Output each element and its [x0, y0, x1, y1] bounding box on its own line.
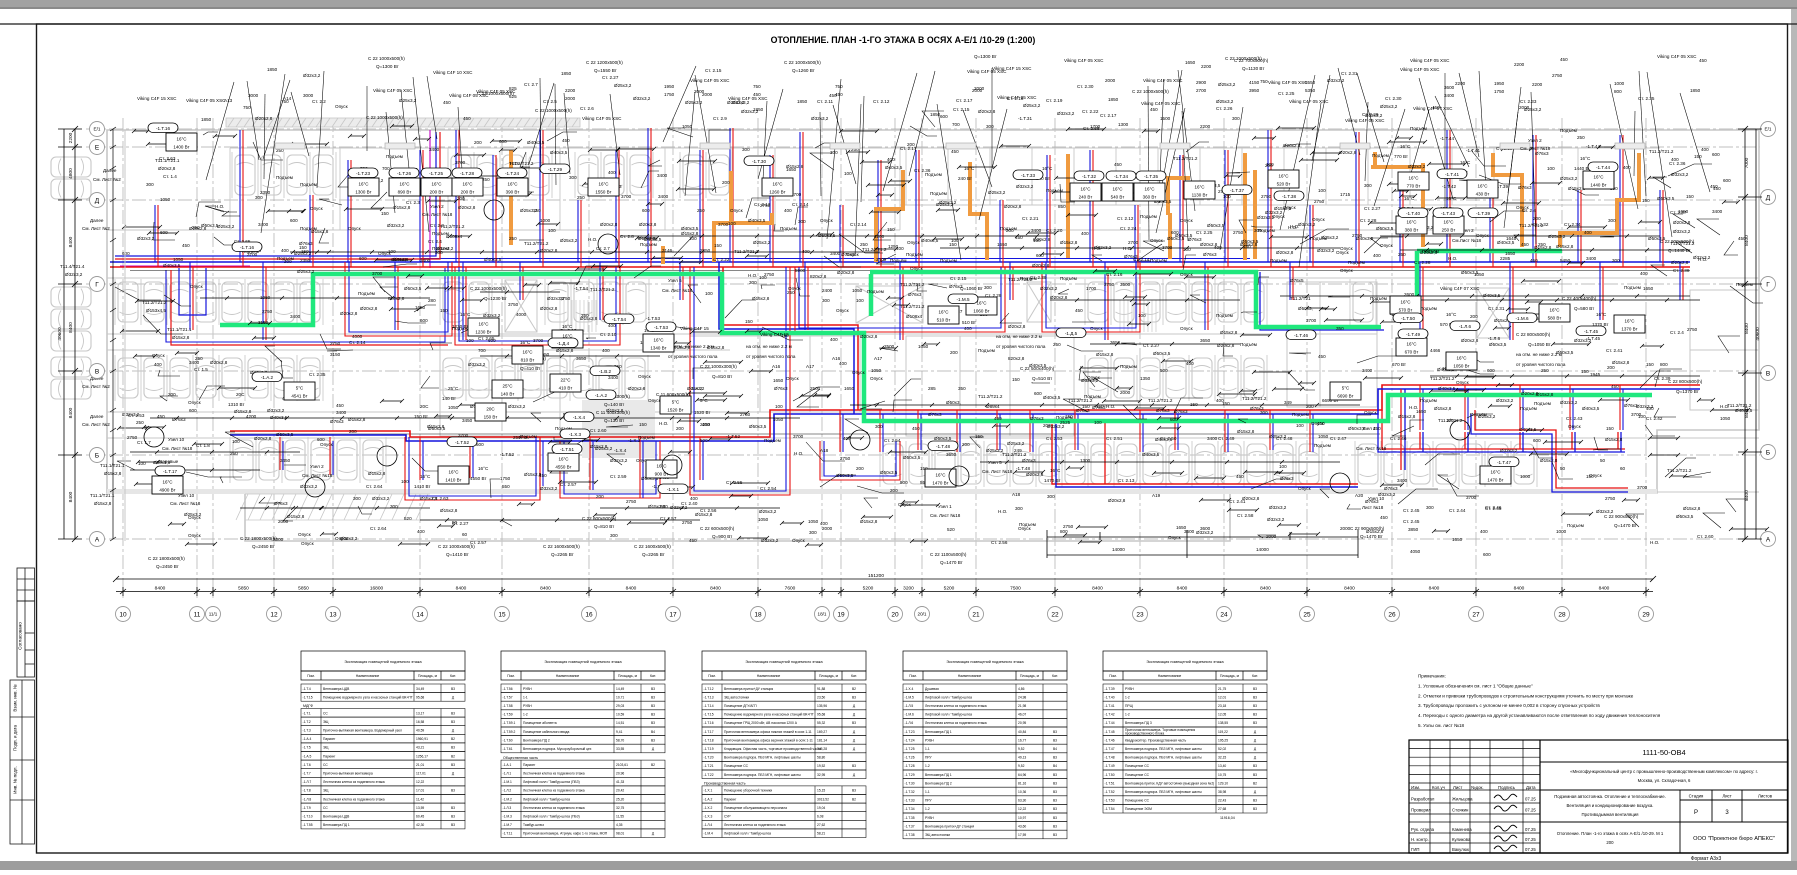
- svg-text:150: 150: [1190, 402, 1198, 407]
- svg-text:138,55: 138,55: [1218, 721, 1228, 725]
- svg-text:Т11.2/Т21.2: Т11.2/Т21.2: [978, 394, 1003, 399]
- svg-text:2750: 2750: [1104, 282, 1115, 287]
- svg-text:200: 200: [168, 392, 176, 397]
- svg-text:Ø20х2,8: Ø20х2,8: [1420, 250, 1438, 255]
- svg-text:Опуск: Опуск: [820, 218, 834, 223]
- svg-text:Ø20х2,8: Ø20х2,8: [1217, 343, 1235, 348]
- svg-text:-1.Л.5: -1.Л.5: [905, 704, 914, 708]
- svg-text:24,98: 24,98: [1018, 695, 1026, 699]
- svg-text:-1.Т.12: -1.Т.12: [704, 687, 714, 691]
- svg-text:-1.Т.50: -1.Т.50: [1105, 773, 1115, 777]
- svg-text:400: 400: [1584, 230, 1592, 235]
- svg-text:450: 450: [1380, 515, 1388, 520]
- svg-text:24: 24: [1220, 611, 1228, 618]
- svg-text:3400: 3400: [1712, 209, 1723, 214]
- svg-text:Ø15х2,8: Ø15х2,8: [1536, 392, 1554, 397]
- svg-text:Паркинг: Паркинг: [323, 737, 336, 741]
- svg-text:-1.Т.59: -1.Т.59: [503, 713, 513, 717]
- svg-text:100: 100: [1183, 247, 1191, 252]
- svg-text:40600: 40600: [57, 327, 63, 341]
- svg-text:1850: 1850: [267, 67, 278, 72]
- svg-text:2750: 2750: [626, 499, 637, 504]
- svg-text:Опуск: Опуск: [1180, 326, 1194, 331]
- svg-text:Подъем: Подъем: [1046, 188, 1063, 193]
- svg-text:450: 450: [1236, 474, 1244, 479]
- svg-text:Ø20х2,8: Ø20х2,8: [254, 436, 272, 441]
- svg-text:12,22: 12,22: [1018, 807, 1026, 811]
- svg-text:-1.Т.16: -1.Т.16: [240, 245, 254, 250]
- svg-text:100: 100: [232, 439, 240, 444]
- svg-text:-1.Т.61: -1.Т.61: [503, 747, 513, 751]
- svg-text:600: 600: [1487, 368, 1495, 373]
- svg-text:7500: 7500: [1010, 586, 1021, 592]
- svg-text:1300 Вт: 1300 Вт: [355, 190, 371, 195]
- svg-text:8400: 8400: [1177, 586, 1188, 592]
- svg-text:Венткамера ЦДВ: Венткамера ЦДВ: [323, 815, 350, 819]
- svg-text:-1.Т.15: -1.Т.15: [303, 695, 313, 699]
- svg-text:Ø25х3,2: Ø25х3,2: [988, 190, 1006, 195]
- svg-text:Н. контр.: Н. контр.: [1411, 837, 1429, 842]
- svg-text:Ст. 1.8: Ст. 1.8: [196, 443, 210, 448]
- svg-text:181,14: 181,14: [817, 738, 827, 742]
- svg-text:Ø15х2,8: Ø15х2,8: [524, 472, 542, 477]
- svg-text:11,55: 11,55: [616, 815, 624, 819]
- svg-text:1470 Вт: 1470 Вт: [932, 481, 948, 486]
- svg-text:1470 Вт: 1470 Вт: [1487, 478, 1503, 483]
- svg-text:Ø76х3: Ø76х3: [1203, 252, 1217, 257]
- svg-text:В2: В2: [651, 763, 655, 767]
- svg-text:Ø32х3,2: Ø32х3,2: [761, 538, 779, 543]
- svg-text:150: 150: [639, 422, 647, 427]
- svg-text:А20: А20: [1355, 493, 1364, 498]
- svg-text:Опуск: Опуск: [870, 376, 884, 381]
- svg-text:-1.Л.4: -1.Л.4: [704, 823, 713, 827]
- svg-text:Опуск: Опуск: [846, 252, 860, 257]
- svg-text:ЭЩ: ЭЩ: [323, 789, 328, 793]
- svg-text:Ø15х2,8: Ø15х2,8: [94, 501, 112, 506]
- svg-text:Приточно-вытяжная венткамера: Приточно-вытяжная венткамера: [323, 772, 373, 776]
- svg-text:-1.А.2: -1.А.2: [704, 797, 713, 801]
- svg-text:В3: В3: [651, 713, 655, 717]
- svg-text:1050: 1050: [173, 257, 184, 262]
- svg-text:300: 300: [822, 298, 830, 303]
- svg-text:2750: 2750: [262, 309, 273, 314]
- svg-text:800: 800: [1614, 89, 1622, 94]
- svg-text:400: 400: [602, 348, 610, 353]
- svg-text:Viking C4F 05 XSC: Viking C4F 05 XSC: [373, 88, 413, 93]
- svg-text:Ст. 2.27: Ст. 2.27: [602, 75, 619, 80]
- svg-text:349: 349: [1284, 400, 1292, 405]
- svg-text:РУВН: РУВН: [925, 816, 934, 820]
- svg-text:Ст. 2.2: Ст. 2.2: [312, 99, 326, 104]
- svg-text:250: 250: [230, 451, 238, 456]
- svg-text:-1.Т.45: -1.Т.45: [1584, 329, 1598, 334]
- svg-text:-1.Т.32: -1.Т.32: [905, 790, 915, 794]
- svg-text:А: А: [95, 536, 100, 543]
- svg-text:Ст. 2.55: Ст. 2.55: [726, 480, 743, 485]
- svg-text:С 22 900х500(h): С 22 900х500(h): [1350, 526, 1385, 531]
- svg-text:200: 200: [474, 140, 482, 145]
- svg-text:1250: 1250: [888, 244, 899, 249]
- svg-text:07.25: 07.25: [1525, 808, 1536, 813]
- svg-text:300: 300: [255, 195, 263, 200]
- svg-text:Ст. 2.4: Ст. 2.4: [1670, 330, 1684, 335]
- svg-text:-1.Т.58: -1.Т.58: [503, 704, 513, 708]
- svg-text:16°C: 16°C: [162, 480, 173, 485]
- svg-text:Приточная венткамера офиса ниж: Приточная венткамера офиса нижних этажей…: [724, 730, 812, 734]
- svg-text:В3: В3: [651, 738, 655, 742]
- svg-text:95,68: 95,68: [817, 713, 825, 717]
- svg-text:Помещение ГРЩ 2000 кВт, АВ нас: Помещение ГРЩ 2000 кВт, АВ насосная 1200…: [724, 721, 798, 725]
- svg-text:200: 200: [1470, 314, 1478, 319]
- svg-text:Ст. 2.47: Ст. 2.47: [1330, 436, 1347, 441]
- svg-text:Лестничная клетка из подземног: Лестничная клетка из подземного этажа: [724, 823, 786, 827]
- svg-text:-1.Т.56: -1.Т.56: [503, 687, 513, 691]
- svg-text:-1.Л.3: -1.Л.3: [503, 806, 512, 810]
- svg-text:8400: 8400: [1344, 586, 1355, 592]
- svg-text:2200: 2200: [1200, 124, 1211, 129]
- svg-text:производственного блока: производственного блока: [1125, 731, 1164, 735]
- svg-text:Ø32х3,2: Ø32х3,2: [1496, 398, 1514, 403]
- svg-text:Н.О.: Н.О.: [1448, 256, 1457, 261]
- svg-text:Опуск: Опуск: [1456, 380, 1470, 385]
- svg-text:Паркинг: Паркинг: [523, 763, 536, 767]
- svg-text:300: 300: [809, 530, 817, 535]
- svg-text:-1.А.5: -1.А.5: [303, 754, 312, 758]
- svg-text:Е/1: Е/1: [1765, 127, 1772, 132]
- svg-text:150: 150: [1586, 474, 1594, 479]
- svg-text:2350: 2350: [300, 258, 311, 263]
- svg-text:2. Отметки и привязки трубопро: 2. Отметки и привязки трубопроводов к ст…: [1418, 693, 1634, 698]
- svg-text:2700: 2700: [1196, 88, 1207, 93]
- svg-text:200: 200: [950, 350, 958, 355]
- svg-text:Ø76х3: Ø76х3: [1030, 416, 1044, 421]
- svg-text:3400: 3400: [1207, 436, 1218, 441]
- svg-text:Ст. 2.17: Ст. 2.17: [1100, 113, 1117, 118]
- svg-text:Подъем: Подъем: [300, 226, 317, 231]
- svg-text:17,01: 17,01: [416, 789, 424, 793]
- svg-text:Подьём: Подьём: [890, 258, 907, 263]
- svg-text:16,58: 16,58: [416, 720, 424, 724]
- svg-text:Ø50х3,5: Ø50х3,5: [1167, 236, 1185, 241]
- svg-text:Подъем: Подъем: [978, 348, 995, 353]
- svg-text:Ø20х2,8: Ø20х2,8: [1283, 143, 1301, 148]
- svg-text:19,52: 19,52: [817, 764, 825, 768]
- svg-text:Ст. 2.35: Ст. 2.35: [1638, 96, 1655, 101]
- svg-text:-1.М.6: -1.М.6: [905, 713, 915, 717]
- svg-text:-1.Т.35: -1.Т.35: [905, 816, 915, 820]
- svg-text:98,01: 98,01: [616, 832, 624, 836]
- svg-text:16°C: 16°C: [358, 182, 369, 187]
- svg-text:Наименование: Наименование: [556, 674, 580, 678]
- svg-text:Лестничная клетка из подземног: Лестничная клетка из подземного этажа: [925, 721, 987, 725]
- svg-text:1850: 1850: [797, 99, 808, 104]
- svg-text:169,27: 169,27: [817, 730, 827, 734]
- svg-text:16°C: 16°C: [653, 338, 664, 343]
- svg-text:-1.Т.53: -1.Т.53: [654, 325, 668, 330]
- svg-text:Viking C4F 05 XSC: Viking C4F 05 XSC: [582, 116, 622, 121]
- svg-text:Экспликация помещений подземно: Экспликация помещений подземного этажа: [544, 660, 622, 664]
- svg-text:-1.Т.33: -1.Т.33: [1021, 173, 1035, 178]
- svg-text:2000: 2000: [278, 519, 289, 524]
- svg-text:Q=1300 Вт: Q=1300 Вт: [376, 64, 400, 69]
- svg-text:3400: 3400: [658, 194, 669, 199]
- svg-text:29: 29: [1642, 611, 1650, 618]
- svg-text:600: 600: [420, 318, 428, 323]
- svg-text:9,52: 9,52: [1018, 764, 1025, 768]
- svg-text:500: 500: [900, 480, 908, 485]
- svg-text:60: 60: [462, 532, 468, 537]
- svg-text:-1.Т.13: -1.Т.13: [704, 695, 714, 699]
- svg-text:Ø25х3,2: Ø25х3,2: [399, 98, 417, 103]
- svg-text:12,01: 12,01: [1218, 695, 1226, 699]
- svg-text:600: 600: [1712, 152, 1720, 157]
- svg-text:16°C: 16°C: [772, 182, 783, 187]
- svg-text:1470 Вт: 1470 Вт: [1044, 478, 1061, 483]
- svg-text:7000: 7000: [1744, 157, 1750, 168]
- svg-text:Ø32х3,2: Ø32х3,2: [1327, 78, 1345, 83]
- svg-text:Ø25х3,2: Ø25х3,2: [614, 83, 632, 88]
- svg-text:Узел 10: Узел 10: [1368, 496, 1385, 501]
- svg-text:Подъем: Подъем: [1020, 276, 1037, 281]
- svg-text:В4: В4: [1053, 764, 1057, 768]
- svg-text:3750: 3750: [508, 302, 519, 307]
- svg-text:Ст. 2.56: Ст. 2.56: [991, 540, 1008, 545]
- svg-text:Ø25х3,2: Ø25х3,2: [560, 238, 578, 243]
- svg-text:1-2: 1-2: [925, 807, 930, 811]
- svg-text:Ст. 2.8: Ст. 2.8: [620, 234, 634, 239]
- svg-text:100: 100: [548, 228, 556, 233]
- svg-text:Viking C4F 07 XSC: Viking C4F 07 XSC: [1440, 286, 1480, 291]
- svg-text:520: 520: [404, 516, 412, 521]
- svg-text:16°C: 16°C: [460, 312, 471, 317]
- svg-text:-1.Т.45: -1.Т.45: [1586, 336, 1600, 341]
- svg-text:-1.Т.55: -1.Т.55: [303, 823, 313, 827]
- svg-text:Подпись: Подпись: [1498, 785, 1516, 790]
- svg-text:Помещение СС: Помещение СС: [1125, 764, 1150, 768]
- svg-text:Подъем: Подъем: [780, 226, 797, 231]
- svg-text:58,70: 58,70: [616, 738, 624, 742]
- svg-text:В3: В3: [1053, 816, 1057, 820]
- svg-text:Венткамера ПД 1: Венткамера ПД 1: [925, 773, 952, 777]
- svg-text:129,10: 129,10: [1218, 781, 1228, 785]
- svg-text:16,77: 16,77: [1018, 738, 1026, 742]
- svg-text:-1.Х.4: -1.Х.4: [573, 415, 586, 420]
- svg-text:-1.Т.54: -1.Т.54: [574, 286, 588, 291]
- svg-text:-1.Т.30: -1.Т.30: [752, 159, 766, 164]
- svg-text:20,42: 20,42: [616, 789, 624, 793]
- svg-text:Viking C4F 05 XSC: Viking C4F 05 XSC: [449, 93, 489, 98]
- svg-text:Ø15х2,8: Ø15х2,8: [393, 205, 411, 210]
- svg-text:Ø20х2,8: Ø20х2,8: [1276, 250, 1294, 255]
- svg-text:Ø40х3,5: Ø40х3,5: [1582, 406, 1600, 411]
- svg-text:-1.Х.2: -1.Х.2: [704, 806, 713, 810]
- svg-text:Q=2450 Вт: Q=2450 Вт: [252, 544, 276, 549]
- svg-text:4200: 4200: [874, 234, 885, 239]
- svg-text:3400: 3400: [258, 222, 269, 227]
- svg-text:С 22 600х500(h): С 22 600х500(h): [700, 526, 735, 531]
- svg-text:Ø76х5: Ø76х5: [1290, 278, 1304, 283]
- svg-text:Ст. 2.60: Ст. 2.60: [1697, 534, 1714, 539]
- svg-text:Помещение ДГУ/АГП: Помещение ДГУ/АГП: [724, 704, 757, 708]
- svg-text:Опуск: Опуск: [852, 370, 866, 375]
- svg-text:-1.Т.39: -1.Т.39: [1105, 687, 1115, 691]
- svg-text:4900 Вт: 4900 Вт: [159, 488, 175, 493]
- svg-text:21,98: 21,98: [1018, 704, 1026, 708]
- svg-text:Т11.2/Т21.2: Т11.2/Т21.2: [590, 287, 615, 292]
- svg-text:Помещение кабельного ввода: Помещение кабельного ввода: [523, 730, 569, 734]
- svg-text:Ø15х2,8: Ø15х2,8: [1556, 244, 1574, 249]
- svg-text:Н.О.: Н.О.: [1123, 246, 1132, 251]
- svg-text:Изм.: Изм.: [1411, 785, 1420, 790]
- svg-text:250: 250: [509, 236, 517, 241]
- svg-text:-1.Т.24: -1.Т.24: [505, 171, 519, 176]
- svg-text:Опуск: Опуск: [1272, 214, 1286, 219]
- svg-text:3400: 3400: [1397, 478, 1408, 483]
- svg-text:16°C: 16°C: [520, 340, 531, 345]
- svg-text:Ст. 1.4: Ст. 1.4: [163, 174, 177, 179]
- svg-text:12,05: 12,05: [1218, 713, 1226, 717]
- svg-text:Ст. 2.36: Ст. 2.36: [1669, 161, 1686, 166]
- svg-text:38,98: 38,98: [1218, 790, 1226, 794]
- svg-text:119,22: 119,22: [1218, 730, 1228, 734]
- svg-text:600: 600: [1036, 253, 1044, 258]
- svg-text:Ø15х2,8: Ø15х2,8: [590, 444, 608, 449]
- svg-text:Ст. 2.27: Ст. 2.27: [1143, 343, 1160, 348]
- svg-text:400: 400: [417, 529, 425, 534]
- svg-text:от уровня чистого пола: от уровня чистого пола: [746, 354, 796, 359]
- svg-text:Ø50х3,5: Ø50х3,5: [903, 455, 921, 460]
- svg-text:Ø20х2,8: Ø20х2,8: [255, 116, 273, 121]
- svg-text:Шаровые: Шаровые: [158, 459, 179, 464]
- svg-text:Экспликация помещений подземно: Экспликация помещений подземного этажа: [344, 660, 422, 664]
- svg-text:-1.Т.25: -1.Т.25: [429, 171, 443, 176]
- svg-text:1260 Вт: 1260 Вт: [769, 190, 785, 195]
- svg-text:Ø76х3: Ø76х3: [928, 412, 942, 417]
- svg-text:2000: 2000: [565, 96, 576, 101]
- svg-text:Ø20х2,8: Ø20х2,8: [600, 222, 618, 227]
- svg-text:Q=140 Вт: Q=140 Вт: [604, 402, 625, 407]
- svg-text:Помещение СС: Помещение СС: [724, 764, 749, 768]
- svg-text:1520 Вт: 1520 Вт: [667, 408, 683, 413]
- svg-text:1650: 1650: [773, 378, 784, 383]
- svg-text:Ст. 2.59: Ст. 2.59: [610, 474, 627, 479]
- svg-text:Ø20х2,8: Ø20х2,8: [540, 306, 558, 311]
- svg-text:Далее: Далее: [103, 168, 117, 173]
- svg-text:300: 300: [146, 182, 154, 187]
- svg-text:200: 200: [856, 466, 864, 471]
- svg-text:100: 100: [728, 221, 736, 226]
- svg-text:В3: В3: [451, 823, 455, 827]
- svg-text:Q=810 Вт: Q=810 Вт: [712, 374, 733, 379]
- svg-text:Стоякин: Стоякин: [1452, 808, 1469, 813]
- svg-text:А18: А18: [1012, 492, 1021, 497]
- svg-text:Подъем: Подъем: [276, 175, 293, 180]
- svg-text:Ø20х2,8: Ø20х2,8: [978, 109, 996, 114]
- svg-text:Подъем: Подъем: [764, 438, 781, 443]
- svg-text:Ø40х3,5: Ø40х3,5: [1519, 427, 1537, 432]
- svg-text:Ст. 2.25: Ст. 2.25: [1278, 91, 1295, 96]
- svg-text:А14: А14: [283, 96, 292, 101]
- svg-text:С 11 400х300(h): С 11 400х300(h): [596, 410, 630, 415]
- svg-text:16°C: 16°C: [1194, 185, 1205, 190]
- svg-text:-1.Т.54: -1.Т.54: [612, 317, 626, 322]
- svg-text:Ø108х4: Ø108х4: [906, 314, 923, 319]
- svg-text:28: 28: [1558, 611, 1566, 618]
- svg-text:Тамбур-шлюз: Тамбур-шлюз: [523, 823, 544, 827]
- svg-text:16°C: 16°C: [1400, 300, 1411, 305]
- svg-text:Н.О.: Н.О.: [588, 237, 597, 242]
- svg-text:100: 100: [844, 171, 852, 176]
- svg-text:3700: 3700: [1637, 485, 1648, 490]
- svg-text:-1.Т.29: -1.Т.29: [548, 167, 562, 172]
- svg-text:Ø32х3,2: Ø32х3,2: [303, 73, 321, 78]
- svg-text:В4: В4: [651, 730, 655, 734]
- svg-text:Опуск: Опуск: [898, 502, 912, 507]
- svg-text:Ø50х3,5: Ø50х3,5: [1657, 196, 1675, 201]
- svg-text:46,07: 46,07: [1018, 713, 1026, 717]
- svg-text:Т11.2/Т21.2: Т11.2/Т21.2: [900, 304, 925, 309]
- svg-text:-1.Т.2: -1.Т.2: [303, 720, 311, 724]
- svg-text:2900: 2900: [1196, 80, 1207, 85]
- svg-text:Т11.1/Т21.1: Т11.1/Т21.1: [90, 493, 115, 498]
- svg-text:Г: Г: [95, 281, 99, 288]
- svg-text:1050: 1050: [808, 519, 819, 524]
- svg-text:1715: 1715: [1340, 192, 1351, 197]
- svg-text:Ø32х3,2: Ø32х3,2: [137, 236, 155, 241]
- svg-text:Ст. 2.6: Ст. 2.6: [580, 106, 594, 111]
- svg-text:Лифтовой холл / Тамбур-шлюз (П: Лифтовой холл / Тамбур-шлюз (ПБЗ): [523, 815, 580, 819]
- svg-text:Т11.2/Т21.2: Т11.2/Т21.2: [142, 300, 167, 305]
- svg-text:ПРЩ: ПРЩ: [1125, 704, 1133, 708]
- svg-text:3850: 3850: [1408, 527, 1419, 532]
- svg-text:Опуск: Опуск: [788, 286, 802, 291]
- svg-text:Ø20х2,8: Ø20х2,8: [540, 248, 558, 253]
- svg-text:Ст. 2.13: Ст. 2.13: [754, 202, 771, 207]
- svg-text:Венткамера приток+ДУ станция: Венткамера приток+ДУ станция: [724, 687, 773, 691]
- svg-text:В3: В3: [852, 789, 856, 793]
- svg-text:Ø40х3,5: Ø40х3,5: [1043, 395, 1061, 400]
- svg-text:С 22 1800х500(h): С 22 1800х500(h): [240, 536, 277, 541]
- svg-text:1850: 1850: [201, 117, 212, 122]
- svg-text:Стадия: Стадия: [1689, 794, 1704, 799]
- svg-text:5350: 5350: [1305, 88, 1316, 93]
- svg-text:Т11.2/Т21.2: Т11.2/Т21.2: [524, 241, 549, 246]
- svg-text:3700: 3700: [1162, 245, 1173, 250]
- svg-text:на отм. не ниже 2.2 м: на отм. не ниже 2.2 м: [1516, 352, 1562, 357]
- svg-text:Q=1050 Вт: Q=1050 Вт: [1528, 342, 1552, 347]
- svg-text:на отм. не ниже 2.2 м: на отм. не ниже 2.2 м: [746, 344, 792, 349]
- svg-text:Опуск: Опуск: [1018, 526, 1032, 531]
- svg-text:14000: 14000: [1256, 547, 1269, 552]
- svg-text:Опуск: Опуск: [1180, 272, 1194, 277]
- svg-text:400: 400: [1186, 361, 1194, 366]
- svg-text:Ст. 2.64: Ст. 2.64: [370, 526, 387, 531]
- svg-text:РУВН: РУВН: [523, 704, 532, 708]
- svg-text:Ø32х3,2: Ø32х3,2: [1636, 404, 1654, 409]
- svg-text:300: 300: [610, 533, 618, 538]
- svg-text:18/1: 18/1: [818, 612, 827, 617]
- svg-text:670 Вт: 670 Вт: [1392, 362, 1407, 367]
- svg-text:300: 300: [457, 196, 465, 201]
- svg-text:1700: 1700: [1086, 286, 1097, 291]
- svg-text:Ø20х2,8: Ø20х2,8: [1461, 338, 1479, 343]
- svg-text:400: 400: [784, 208, 792, 213]
- svg-text:1-1: 1-1: [925, 790, 930, 794]
- svg-text:Т11.2/Т21.2: Т11.2/Т21.2: [1173, 156, 1198, 161]
- svg-text:Площадь, м: Площадь, м: [1220, 674, 1240, 678]
- svg-text:-1.М.5: -1.М.5: [956, 297, 969, 302]
